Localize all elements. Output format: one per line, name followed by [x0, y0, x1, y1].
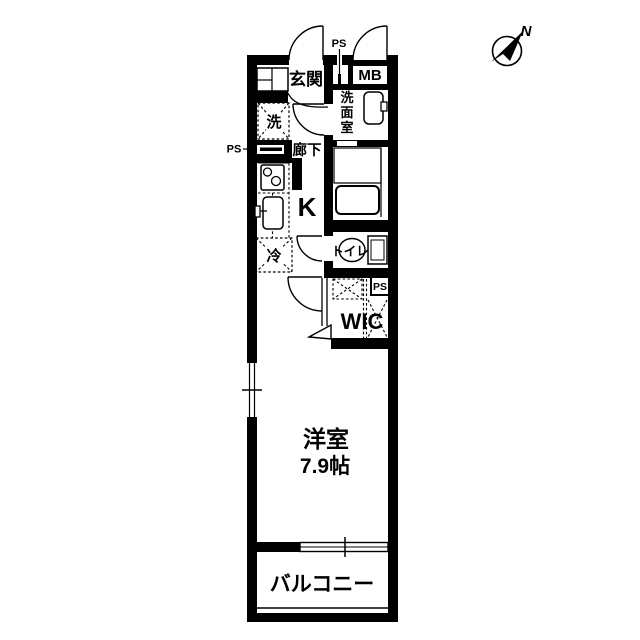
folding-door-icon: [309, 325, 331, 339]
bedroom-door-icon: [288, 277, 322, 311]
svg-text:洗: 洗: [340, 90, 353, 105]
bedroom-label: 洋室: [303, 426, 349, 452]
bedroom-side-window-icon: [242, 363, 262, 417]
washroom-door-icon: [293, 104, 324, 135]
wash-basin-icon: [364, 92, 387, 124]
shoe-cabinet-icon: [257, 68, 288, 91]
compass-north-label: N: [521, 23, 533, 40]
stove-icon: [261, 165, 284, 190]
toilet-door-icon: [297, 236, 322, 261]
ps-wic-label: PS: [373, 281, 387, 293]
compass: N: [491, 23, 533, 66]
balcony-sliding-window-icon: [300, 537, 388, 557]
entrance-step-line: [288, 93, 328, 107]
rouka-label: 廊下: [293, 141, 322, 159]
ps-top-label: PS: [332, 38, 347, 50]
fridge-label: 冷: [266, 247, 281, 265]
kitchen-label: K: [298, 192, 317, 222]
entrance-door-icon: [289, 26, 323, 60]
meter-box-door-icon: [353, 26, 387, 60]
toilet-label: トイレ: [331, 245, 369, 259]
sink-icon: [255, 197, 283, 229]
svg-text:室: 室: [340, 120, 353, 135]
washer-label: 洗: [266, 113, 281, 131]
compass-needle-icon: [491, 31, 523, 62]
bedroom-size-label: 7.9帖: [300, 455, 350, 478]
floor-plan-page: N PS 玄関 MB 洗 面 室 洗 廊下 PS K トイレ 冷 PS WIC …: [0, 0, 640, 640]
genkan-label: 玄関: [289, 69, 323, 89]
wic-label: WIC: [341, 309, 384, 334]
floor-plan-drawing: N PS 玄関 MB 洗 面 室 洗 廊下 PS K トイレ 冷 PS WIC …: [0, 0, 640, 640]
senmenshitsu-label: 洗 面 室: [340, 90, 353, 135]
bathtub-icon: [334, 148, 381, 217]
ps-left-label: PS: [227, 144, 242, 156]
meter-box-label: MB: [358, 67, 381, 84]
balcony-label: バルコニー: [270, 573, 375, 596]
svg-text:面: 面: [340, 105, 353, 120]
